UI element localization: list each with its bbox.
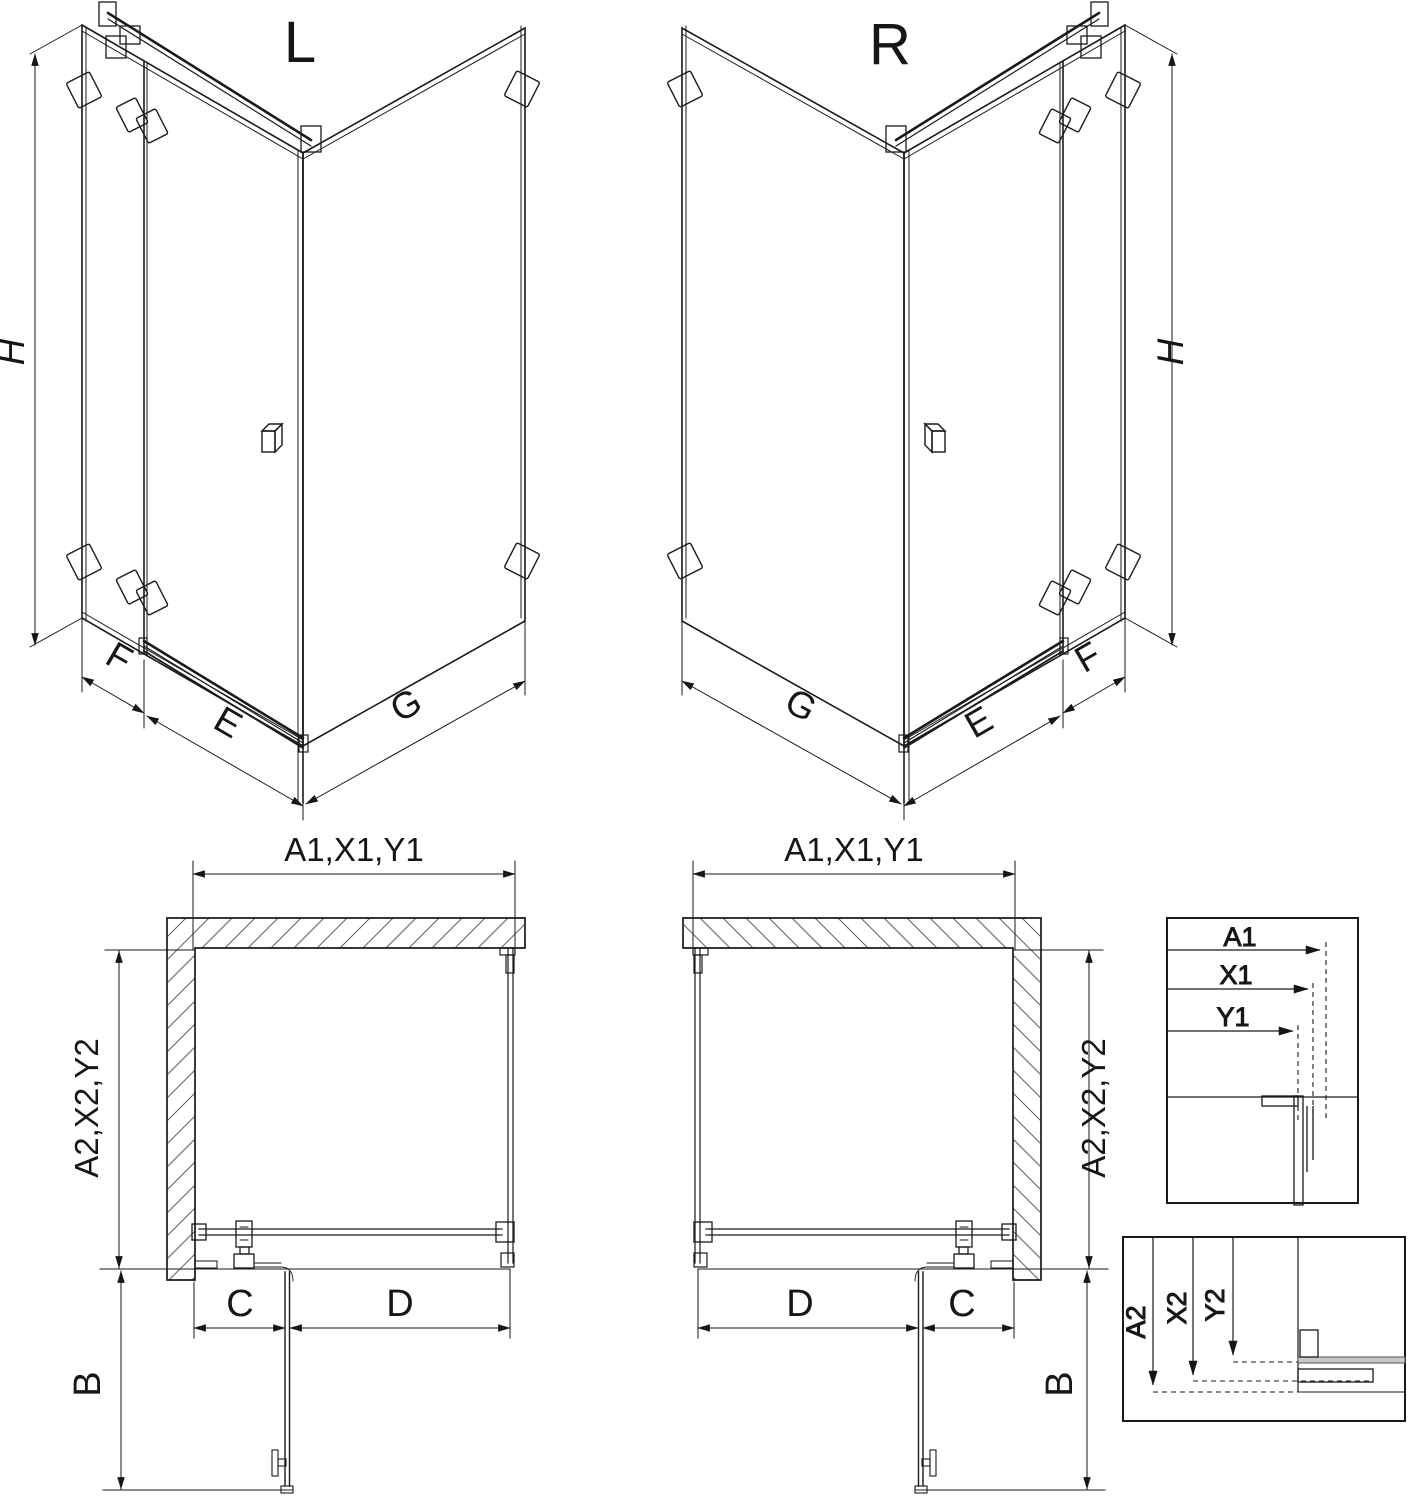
- detail-box-width-frame: [1167, 918, 1358, 1203]
- iso-left-height-label: H: [0, 338, 32, 365]
- plan-right-depth-label: A2,X2,Y2: [1075, 1038, 1112, 1177]
- iso-view-left: L H F E G: [0, 2, 540, 820]
- iso-right-variant-label: R: [869, 12, 911, 77]
- detail-label-x2: X2: [1162, 1291, 1192, 1324]
- detail-label-y2: Y2: [1200, 1288, 1230, 1321]
- iso-right-return-label: G: [779, 680, 824, 730]
- iso-right-height-label: H: [1150, 338, 1191, 365]
- detail-label-a2: A2: [1121, 1305, 1151, 1338]
- iso-left-fixed-label: F: [99, 634, 139, 681]
- detail-depth-reference-lines: [1153, 1362, 1373, 1392]
- detail-box-depth-frame: [1123, 1237, 1405, 1421]
- plan-right-fixed-label: C: [948, 1283, 975, 1325]
- detail-label-x1: X1: [1219, 960, 1252, 990]
- detail-label-a1: A1: [1223, 922, 1256, 952]
- plan-left-fixed-label: C: [226, 1283, 253, 1325]
- iso-left-return-label: G: [383, 680, 428, 730]
- detail-box-width-dims: A1 X1 Y1: [1167, 918, 1358, 1205]
- detail-width-reference-lines: [1298, 942, 1326, 1120]
- plan-right-width-label: A1,X1,Y1: [784, 831, 923, 868]
- plan-right-door-label: D: [786, 1283, 813, 1325]
- detail-box-depth-dims: A2 X2 Y2: [1121, 1237, 1405, 1421]
- plan-left-door-label: D: [386, 1283, 413, 1325]
- iso-right-fixed-label: F: [1068, 634, 1108, 681]
- plan-left-depth-label: A2,X2,Y2: [68, 1038, 105, 1177]
- detail-width-profile: [1262, 1096, 1313, 1205]
- plan-view-left: A1,X1,Y1 A2,X2,Y2 C D B: [67, 831, 525, 1493]
- detail-depth-profile: [1298, 1330, 1405, 1392]
- plan-view-right: A1,X1,Y1 A2,X2,Y2 D C B: [683, 831, 1112, 1493]
- plan-left-width-label: A1,X1,Y1: [284, 831, 423, 868]
- shower-enclosure-technical-diagram: L H F E G R H F E G A1,X1,Y1 A2,X2,Y2 C …: [0, 0, 1416, 1499]
- iso-view-right: R H F E G: [667, 2, 1191, 820]
- plan-right-swing-label: B: [1039, 1371, 1081, 1396]
- detail-label-y1: Y1: [1216, 1002, 1249, 1032]
- iso-left-variant-label: L: [284, 10, 316, 75]
- plan-left-swing-label: B: [67, 1371, 109, 1396]
